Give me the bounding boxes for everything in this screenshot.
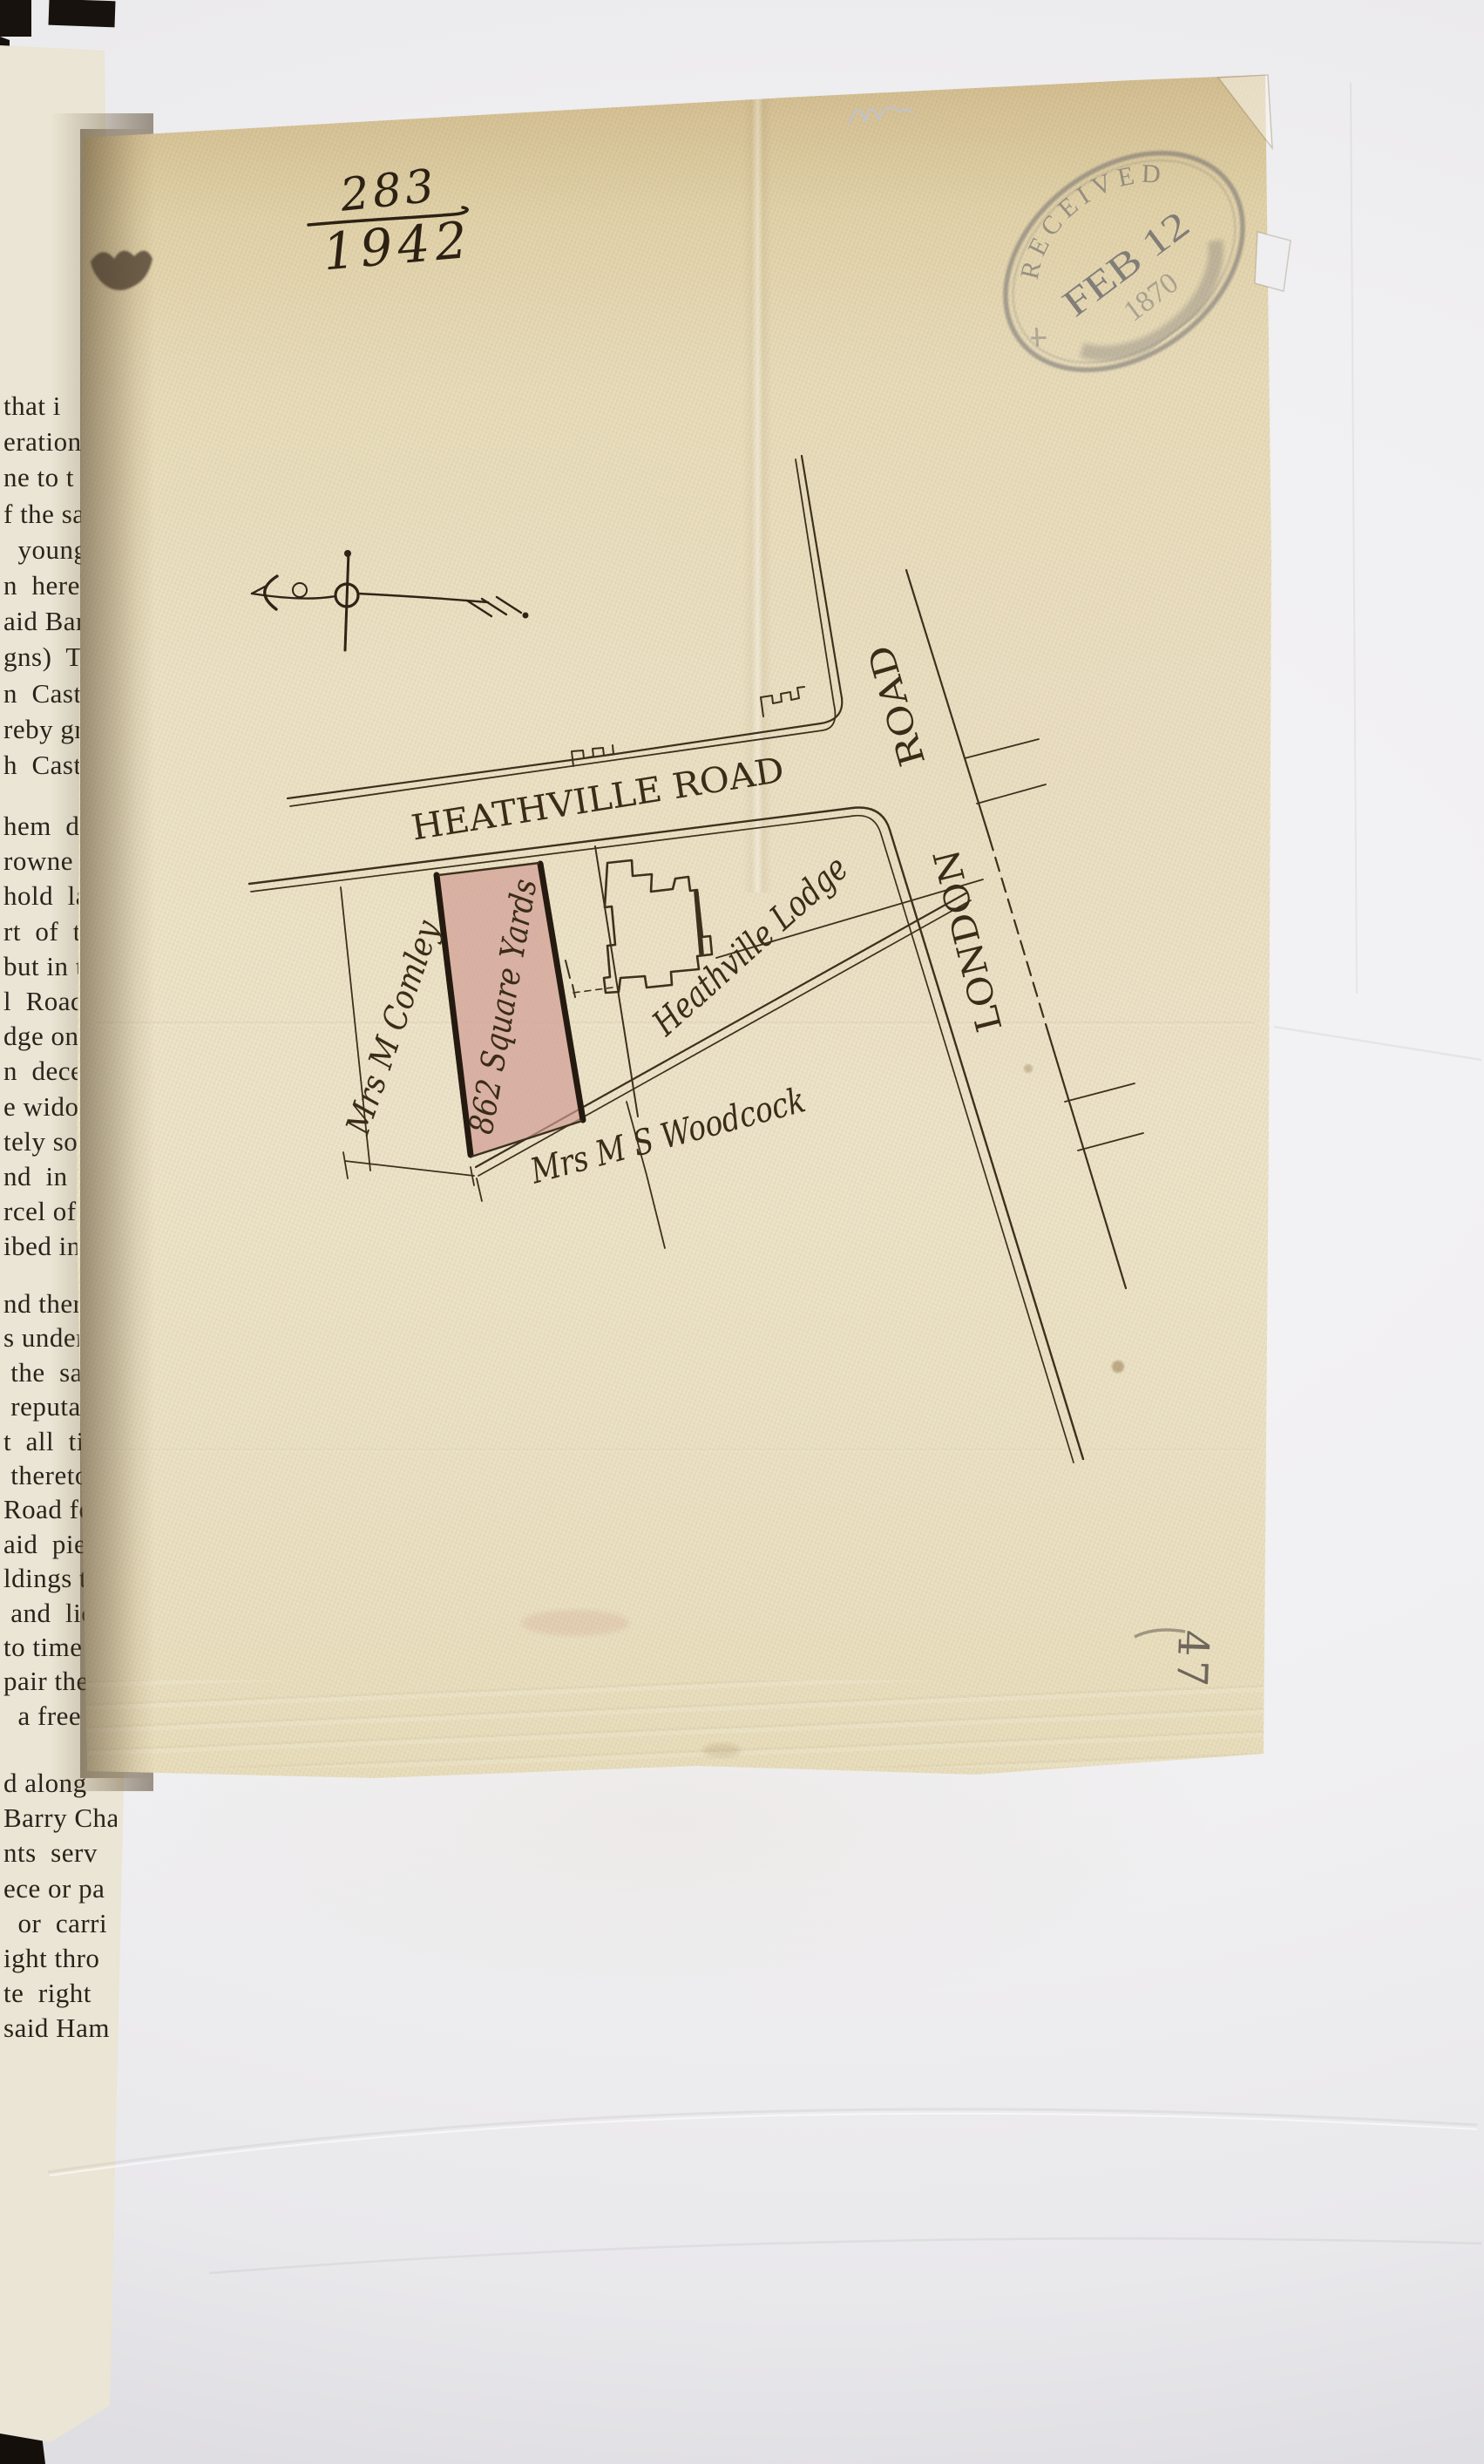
paper-crease bbox=[742, 91, 772, 893]
paper-crease bbox=[96, 1449, 1255, 1452]
paper-crease bbox=[87, 1680, 1264, 1768]
scanned-archive-page: that ierationne to tf the sa youngn here… bbox=[0, 0, 1484, 2464]
book-text-line: te right bbox=[3, 1978, 117, 2013]
book-text-line: ece or pa bbox=[3, 1873, 117, 1908]
book-text-line: Barry Cha bbox=[3, 1802, 117, 1837]
book-cover-edge bbox=[48, 0, 115, 27]
book-text-line: or carri bbox=[3, 1908, 117, 1943]
document-fold-shadow bbox=[80, 129, 155, 1778]
book-text-line: ight thro bbox=[3, 1943, 117, 1978]
book-cover-edge bbox=[0, 0, 31, 37]
book-text-line: said Ham bbox=[3, 2013, 117, 2047]
book-text-line: nts serv bbox=[3, 1837, 117, 1872]
paper-crease bbox=[96, 1022, 1255, 1026]
